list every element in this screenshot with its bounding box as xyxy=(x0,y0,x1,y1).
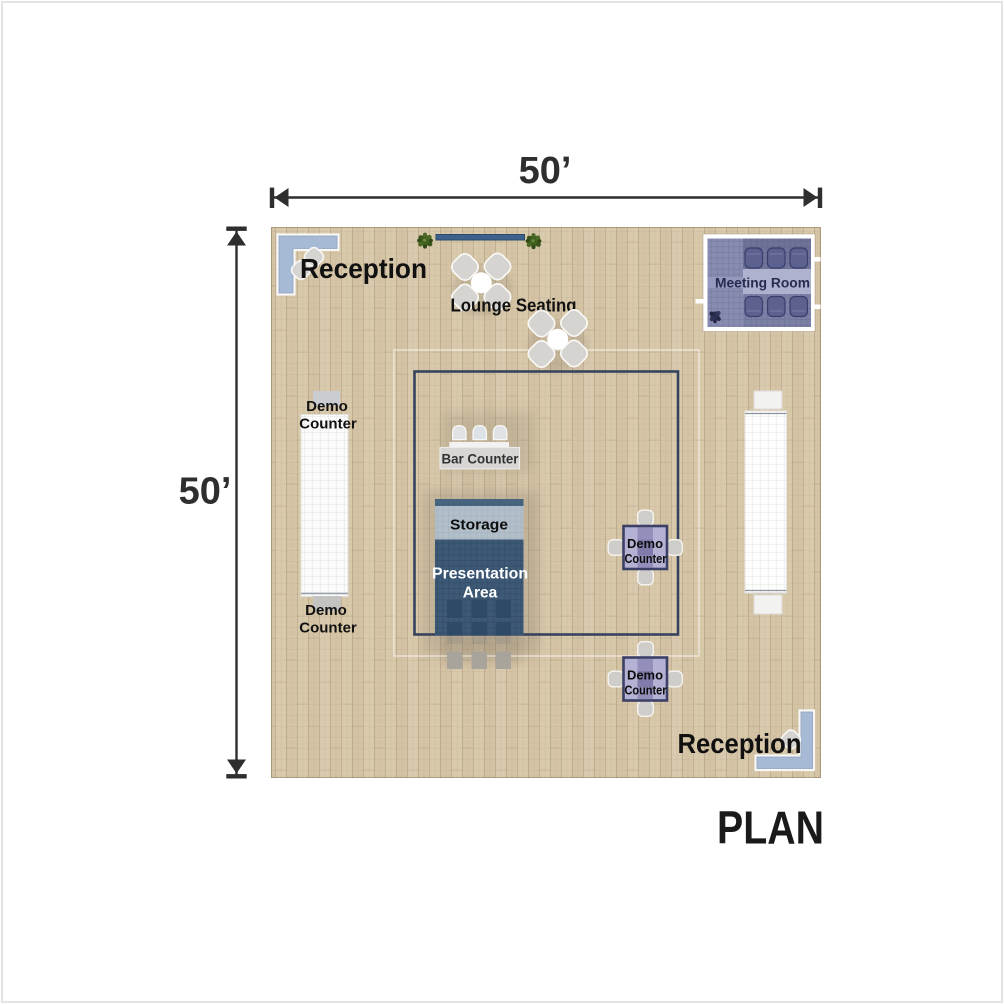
svg-text:PLAN: PLAN xyxy=(717,802,824,854)
svg-text:Counter: Counter xyxy=(625,683,667,698)
svg-text:Demo: Demo xyxy=(305,602,347,619)
svg-text:50’: 50’ xyxy=(179,471,232,513)
svg-text:Presentation: Presentation xyxy=(432,566,528,583)
svg-text:Counter: Counter xyxy=(299,620,357,637)
svg-text:Demo: Demo xyxy=(627,536,663,551)
svg-text:Reception: Reception xyxy=(678,728,802,759)
svg-text:Reception: Reception xyxy=(300,253,427,284)
svg-text:Meeting Room: Meeting Room xyxy=(715,276,810,291)
svg-text:Area: Area xyxy=(463,585,498,602)
svg-text:50’: 50’ xyxy=(519,150,572,192)
svg-text:Storage: Storage xyxy=(450,517,508,534)
svg-text:Bar Counter: Bar Counter xyxy=(442,452,520,467)
svg-text:Lounge Seating: Lounge Seating xyxy=(451,295,577,316)
svg-text:Demo: Demo xyxy=(306,398,348,415)
svg-text:Counter: Counter xyxy=(625,551,667,566)
svg-text:Counter: Counter xyxy=(299,416,357,433)
svg-text:Demo: Demo xyxy=(627,668,663,683)
